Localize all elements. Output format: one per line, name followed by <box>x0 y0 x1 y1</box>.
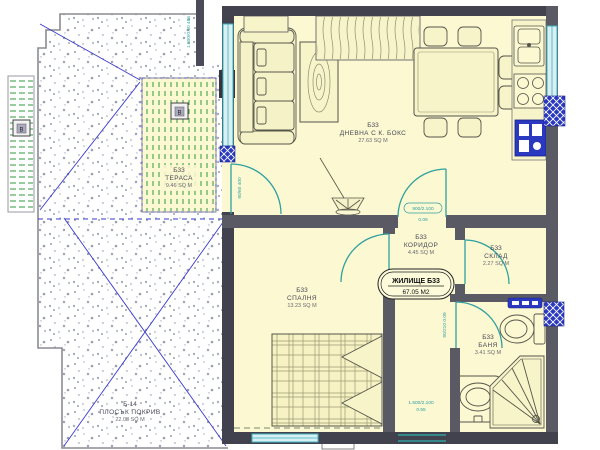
storage-area-value: 2.27 SQ M <box>483 261 510 267</box>
unit-area: 67.05 М2 <box>402 289 429 296</box>
bed <box>272 334 382 426</box>
pergola-strip <box>8 76 34 212</box>
storage-name: СКЛАД <box>484 253 508 260</box>
terrace-area-value: 9.46 SQ M <box>166 183 193 189</box>
corridor-code: Б33 <box>415 234 427 241</box>
living-area-value: 27.63 SQ M <box>358 138 388 144</box>
dim-entry-size: 1.500/2.100 <box>408 400 434 406</box>
terrace-name: ТЕРАСА <box>165 175 193 182</box>
terrace-hatch <box>143 79 215 211</box>
section-marker-terrace: В <box>171 103 188 119</box>
storage-code: Б33 <box>490 245 502 252</box>
roof-name: ПЛОСЪК ПОКРИВ <box>99 409 160 416</box>
wall-north <box>222 6 558 16</box>
toilet <box>500 314 545 344</box>
floor-plan-drawing: Б-14 ПЛОСЪК ПОКРИВ 22.08 SQ M В В Б33 ТЕ… <box>0 0 600 450</box>
living-code: Б33 <box>367 122 379 129</box>
floor-plan-canvas: Б-14 ПЛОСЪК ПОКРИВ 22.08 SQ M В В Б33 ТЕ… <box>0 0 600 450</box>
corridor-area-value: 4.45 SQ M <box>408 250 435 256</box>
sofa <box>238 28 296 144</box>
dining-table <box>414 48 498 116</box>
wall-west-lower <box>222 212 234 432</box>
sideboard <box>244 16 288 32</box>
wall-bedroom-east-top <box>383 228 395 234</box>
bath-shaft-tag <box>508 298 542 308</box>
shaft-bath <box>544 302 564 326</box>
bedroom-code: Б33 <box>296 287 308 294</box>
unit-name: ЖИЛИЩЕ Б33 <box>391 278 440 285</box>
bedroom-name: СПАЛНЯ <box>287 295 317 302</box>
dim-bath-door: 90/210 0.09 <box>442 312 448 338</box>
dim-corridor-door-sub: 0.09 <box>418 217 428 223</box>
terrace-code: Б33 <box>173 167 185 174</box>
bath-code: Б33 <box>482 334 494 341</box>
wall-bath-west <box>450 348 460 432</box>
section-marker-roof: В <box>13 120 30 136</box>
fridge-appliance <box>515 120 546 156</box>
dim-terrace-door: 90/60 400 <box>237 177 243 199</box>
roof-marker-letter: В <box>19 128 23 134</box>
dim-top-left-window: 1.800/0.60 485 <box>186 16 192 48</box>
corridor-name: КОРИДОР <box>404 242 438 249</box>
wall-top-left-stub <box>196 0 204 66</box>
terrace-marker-letter: В <box>177 111 181 117</box>
roof-area-value: 22.08 SQ M <box>115 417 145 423</box>
roof-code: Б-14 <box>123 401 137 408</box>
terrace-label: Б33 ТЕРАСА 9.46 SQ M <box>160 165 198 191</box>
window-south-bedroom <box>252 434 318 442</box>
living-name: ДНЕВНА С К. БОКС <box>340 130 407 137</box>
bath-area-value: 3.41 SQ M <box>475 350 502 356</box>
shaft-living <box>220 146 235 162</box>
stove <box>514 74 546 108</box>
bedroom-area-value: 13.23 SQ M <box>287 303 317 309</box>
wall-living-south-right <box>446 215 558 228</box>
wall-bedroom-east <box>383 282 395 432</box>
wall-storage-west-top <box>455 228 465 240</box>
dim-entry-sill: 0.55 <box>416 407 426 413</box>
unit-label-pill: ЖИЛИЩЕ Б33 67.05 М2 <box>378 269 454 299</box>
dim-corridor-door-size: 900/2.100 <box>412 206 434 212</box>
kitchen-counter <box>512 20 546 160</box>
terrace: В Б33 ТЕРАСА 9.46 SQ M <box>142 78 216 212</box>
shaft-kitchen <box>544 96 565 126</box>
wall-living-south-left <box>222 215 398 228</box>
window-west-living <box>223 24 233 146</box>
kitchen-sink <box>514 26 544 66</box>
tv-cabinet <box>316 16 420 60</box>
bath-name: БАНЯ <box>478 342 497 349</box>
